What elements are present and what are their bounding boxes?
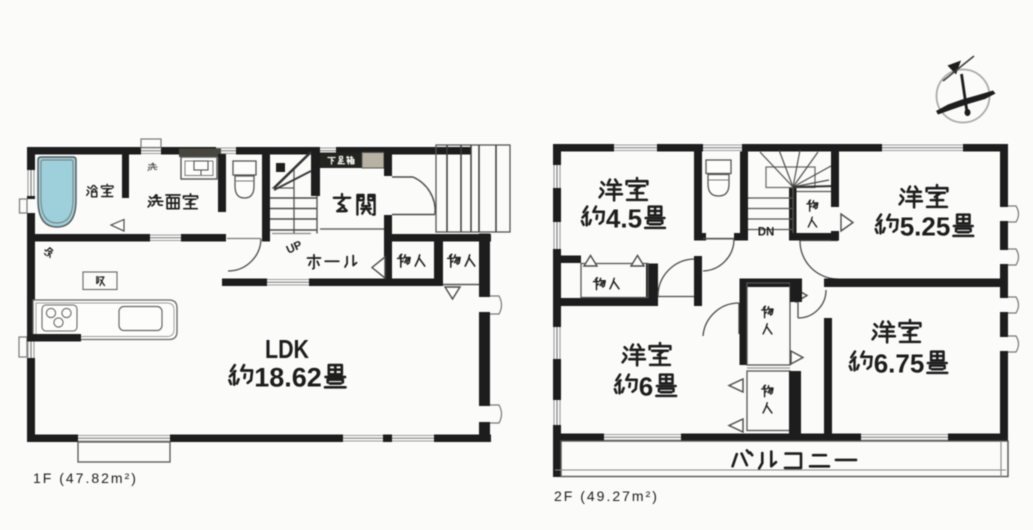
svg-text:4.5: 4.5 bbox=[606, 203, 642, 233]
svg-text:DN: DN bbox=[758, 227, 775, 239]
svg-text:18.62: 18.62 bbox=[254, 363, 322, 393]
svg-text:6: 6 bbox=[639, 371, 653, 401]
svg-text:1F (47.82m²): 1F (47.82m²) bbox=[33, 470, 138, 486]
svg-text:6.75: 6.75 bbox=[874, 348, 925, 378]
svg-text:LDK: LDK bbox=[265, 334, 309, 364]
svg-text:5.25: 5.25 bbox=[900, 211, 951, 241]
svg-text:2F (49.27m²): 2F (49.27m²) bbox=[554, 488, 659, 504]
